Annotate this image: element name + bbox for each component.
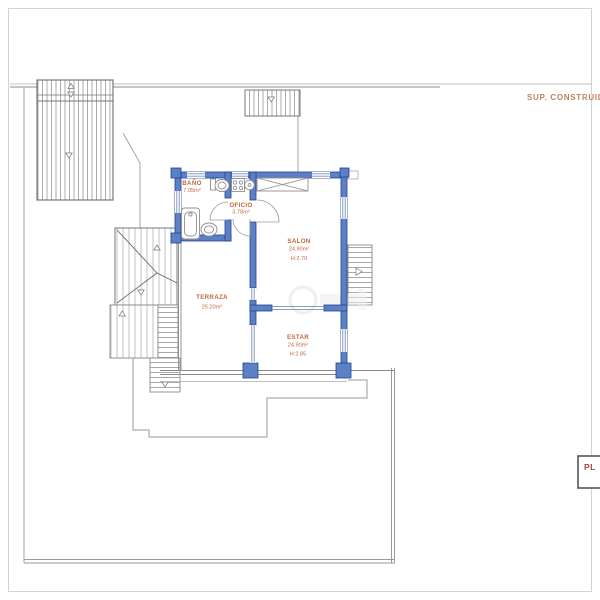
room-area-estar: 24.90m² [288,343,309,349]
room-area-oficio: 3.78m² [232,210,250,216]
room-height-estar: H:2.85 [290,352,306,358]
floor-plan-drawing: BAÑO 7.05m² OFICIO 3.78m² SALON 24.90m² … [0,0,600,600]
room-label-salon: SALON [287,238,310,245]
bathtub-icon [182,208,200,239]
salon-door [257,200,279,222]
room-area-salon: 24.90m² [289,247,310,253]
toilet-icon [211,179,230,192]
bidet-icon [201,223,217,236]
room-label-bano: BAÑO [182,180,201,187]
floor-plan-page: BAÑO 7.05m² OFICIO 3.78m² SALON 24.90m² … [0,0,600,600]
sup-construida-header: SUP. CONSTRUID [527,93,600,102]
canopy-structure [245,90,300,116]
hip-roof [115,228,177,305]
room-labels: BAÑO 7.05m² OFICIO 3.78m² SALON 24.90m² … [182,180,311,358]
room-label-estar: ESTAR [287,334,309,341]
closet-icon [257,178,308,191]
room-label-terraza: TERRAZA [196,294,228,301]
room-height-salon: H:2.70 [291,256,307,262]
title-block: PL [578,456,600,488]
room-label-oficio: OFICIO [229,202,252,209]
stove-icon [232,179,245,192]
pergola-structure [37,80,113,200]
title-block-label: PL [584,462,596,472]
sink-icon [245,180,255,190]
bathroom-door [210,202,228,220]
room-area-bano: 7.05m² [183,188,201,194]
house-walls [171,168,351,378]
oficio-door [233,219,250,236]
room-area-terraza: 25.20m² [202,305,223,311]
stairs-west [110,305,180,392]
exterior-step [348,171,358,179]
